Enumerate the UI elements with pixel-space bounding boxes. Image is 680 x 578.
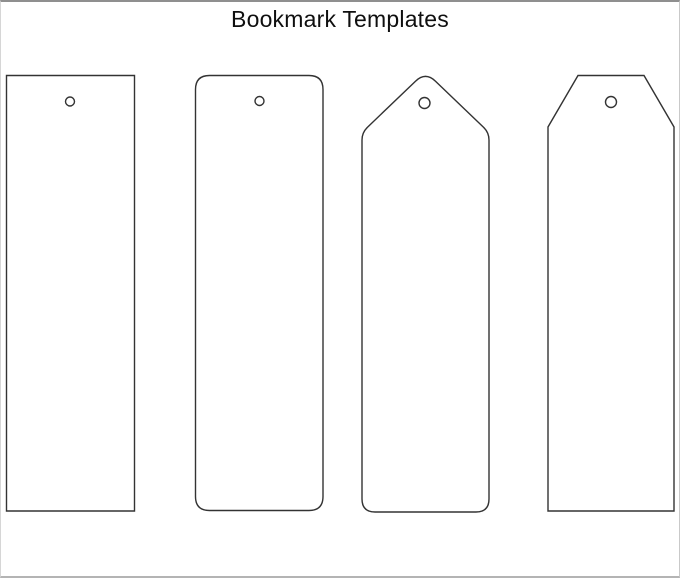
bookmark-rounded-rectangle-hole bbox=[255, 97, 264, 106]
template-sheet: Bookmark Templates bbox=[0, 0, 680, 578]
bookmark-shapes-canvas bbox=[1, 2, 679, 576]
bookmark-rectangle-hole bbox=[66, 97, 75, 106]
bookmark-chamfered-top-hole bbox=[606, 97, 617, 108]
bookmark-chamfered-top-outline bbox=[548, 76, 674, 512]
bookmark-rectangle-outline bbox=[7, 76, 135, 512]
bookmark-pointed-top-outline bbox=[362, 76, 489, 512]
bookmark-rounded-rectangle-outline bbox=[196, 76, 324, 511]
bookmark-pointed-top-hole bbox=[419, 98, 430, 109]
